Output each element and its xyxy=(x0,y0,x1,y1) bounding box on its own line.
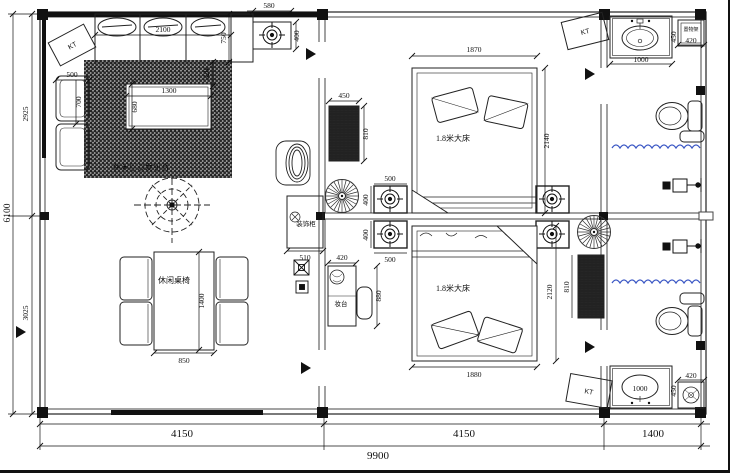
dim-rad1-h: 810 xyxy=(361,128,370,140)
dim-sofa-d: 750 xyxy=(219,32,228,44)
dim-dresser-h: 880 xyxy=(374,290,383,302)
bed-top: 1.8米大床 xyxy=(412,68,537,213)
wall-poche-bottom xyxy=(111,410,263,415)
dim-cabinet-w: 510 xyxy=(299,253,311,262)
dim-dresser-w: 420 xyxy=(336,253,348,262)
wall-vents xyxy=(374,186,569,248)
floor-plan-svg: KT 休闲厅沙发组合 休闲桌椅 1.8米大床 1.8米大床 xyxy=(0,0,730,473)
dim-wallvent-h2: 400 xyxy=(361,229,370,241)
shower-curtain-bottom xyxy=(612,280,700,283)
dim-coffee-w: 1300 xyxy=(162,86,177,95)
bedroom-top: 1.8米大床 xyxy=(326,68,611,249)
dressing-table: 妆台 xyxy=(328,266,372,326)
living-room-label: 休闲厅沙发组合 xyxy=(113,162,169,172)
dining-set xyxy=(120,252,248,350)
side-table xyxy=(231,14,253,62)
dim-bed1-l: 2140 xyxy=(542,133,551,148)
shelf-bottom xyxy=(678,382,704,408)
ac-label: KT xyxy=(580,28,591,37)
bed-bottom: 1.8米大床 xyxy=(412,226,537,361)
radiator-left xyxy=(329,106,359,161)
shelf-top-label: 置物架 xyxy=(683,26,698,33)
bedroom-bottom: 1.8米大床 妆台 xyxy=(294,226,604,361)
floor-drain-bottom xyxy=(696,341,705,350)
toilet-bottom xyxy=(656,293,704,336)
wall-notch-right xyxy=(699,212,713,220)
bed-bottom-label: 1.8米大床 xyxy=(436,283,470,293)
dresser-label: 妆台 xyxy=(335,299,348,308)
vanity-top xyxy=(610,16,672,58)
ceiling-fan-symbol xyxy=(134,168,210,243)
dim-wallvent-h: 400 xyxy=(361,194,370,206)
dim-bottom-1: 4150 xyxy=(171,428,194,440)
dim-sofa-gap: 320 xyxy=(202,68,211,80)
dim-vanity1-w: 1000 xyxy=(634,55,649,64)
dim-total-height: 6100 xyxy=(3,203,13,222)
wall-middle xyxy=(319,213,701,219)
dim-rad1-w: 450 xyxy=(338,91,350,100)
shower-curtain-top xyxy=(612,145,700,148)
toilet-mat-top xyxy=(680,131,704,142)
dining-label: 休闲桌椅 xyxy=(158,275,190,285)
toilet-mat-bottom xyxy=(680,293,704,304)
ac-unit-bottom-right: KT xyxy=(566,374,612,409)
dim-total-width: 9900 xyxy=(367,450,390,462)
dim-table-w: 850 xyxy=(178,356,190,365)
exhaust-fan-right xyxy=(578,216,611,249)
dim-bed1-w: 1870 xyxy=(467,45,482,54)
floor-plan-canvas: KT 休闲厅沙发组合 休闲桌椅 1.8米大床 1.8米大床 xyxy=(0,0,730,473)
bathroom-top: 置物架 KT xyxy=(561,12,705,192)
dim-bed2-l: 2120 xyxy=(545,284,554,299)
dim-sofa-w: 2100 xyxy=(156,25,171,34)
dim-left-2: 3025 xyxy=(21,305,30,320)
ac-unit-living: KT xyxy=(48,24,96,66)
dim-vent-w: 580 xyxy=(263,1,275,10)
dim-shelf1-w: 420 xyxy=(685,36,697,45)
dim-vanity2-d: 450 xyxy=(669,385,678,397)
dim-vanity2-w: 1000 xyxy=(633,384,648,393)
dim-bottom-3: 1400 xyxy=(642,428,665,440)
toilet-top xyxy=(656,101,704,142)
ac-label: KT xyxy=(584,388,595,397)
switch-symbols xyxy=(294,260,309,293)
cabinet-label: 装饰柜 xyxy=(296,219,316,228)
dim-shelf2-w: 420 xyxy=(685,371,697,380)
dim-wallvent-w2: 500 xyxy=(384,255,396,264)
dim-wallvent-w: 500 xyxy=(384,174,396,183)
living-room: KT 休闲厅沙发组合 休闲桌椅 xyxy=(48,14,323,350)
office-chair xyxy=(276,141,310,185)
dim-left-1: 2925 xyxy=(21,106,30,121)
dim-rad2-h: 810 xyxy=(562,281,571,293)
floor-drain-top xyxy=(696,86,705,95)
radiator-right xyxy=(578,255,604,318)
shower-head-bottom xyxy=(663,239,701,253)
dim-coffee-d: 680 xyxy=(130,101,139,113)
dim-armchair-d: 700 xyxy=(74,96,83,108)
dim-bottom-2: 4150 xyxy=(453,428,476,440)
exhaust-fan-left xyxy=(326,180,359,213)
ac-label: KT xyxy=(67,41,79,52)
bed-top-label: 1.8米大床 xyxy=(436,133,470,143)
dim-table-l: 1400 xyxy=(197,293,206,308)
shower-head-top xyxy=(663,178,701,192)
wall-poche-left xyxy=(42,14,46,158)
dim-bed2-w: 1880 xyxy=(467,370,482,379)
ceiling-vent-top xyxy=(253,22,291,49)
dim-armchair-w: 500 xyxy=(66,70,78,79)
dim-vanity1-d: 450 xyxy=(669,31,678,43)
dim-vent-h: 400 xyxy=(292,30,301,42)
